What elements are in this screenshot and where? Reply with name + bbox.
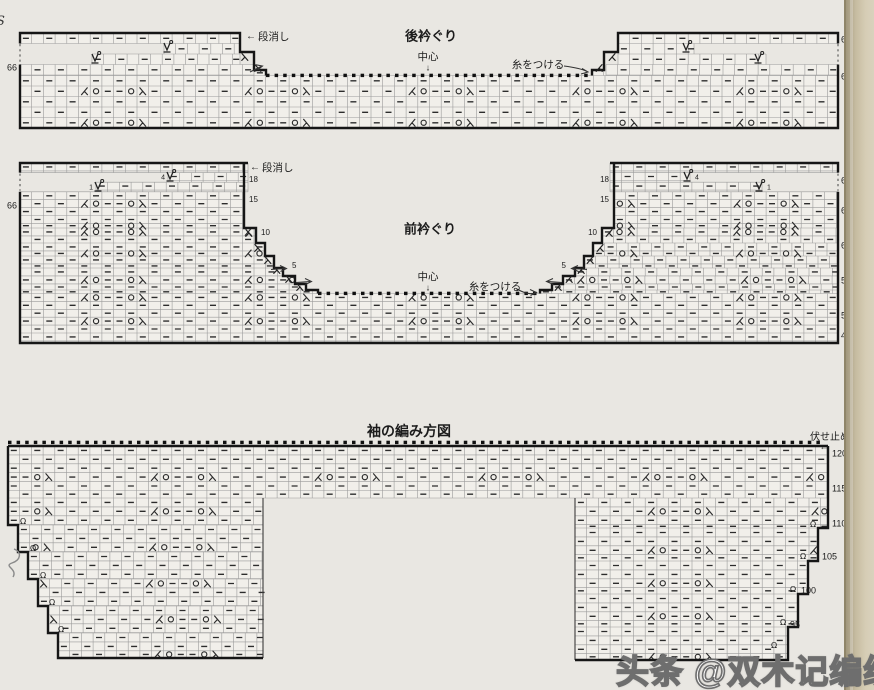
chart3-row-105: 105 bbox=[822, 553, 837, 562]
chart3-bindoff-arrow: ← bbox=[820, 443, 829, 452]
watermark: 头条 @双木记编织 bbox=[616, 645, 874, 690]
sleeve-labels: 袖の編み方図伏せ止め←12011511010510095 bbox=[0, 0, 874, 690]
chart-sleeve: ΩΩΩΩΩΩΩΩΩΩ 袖の編み方図伏せ止め←12011511010510095 bbox=[0, 0, 874, 690]
chart3-row-100: 100 bbox=[801, 587, 816, 596]
chart3-row-95: 95 bbox=[790, 621, 800, 630]
scanned-knitting-pattern-page: S 後衿ぐり←段消し中心↓糸をつける666665 前衿ぐり←段消し中心↓糸をつけ… bbox=[0, 0, 874, 690]
chart3-title: 袖の編み方図 bbox=[367, 424, 451, 438]
page-edge-strip bbox=[844, 0, 874, 690]
